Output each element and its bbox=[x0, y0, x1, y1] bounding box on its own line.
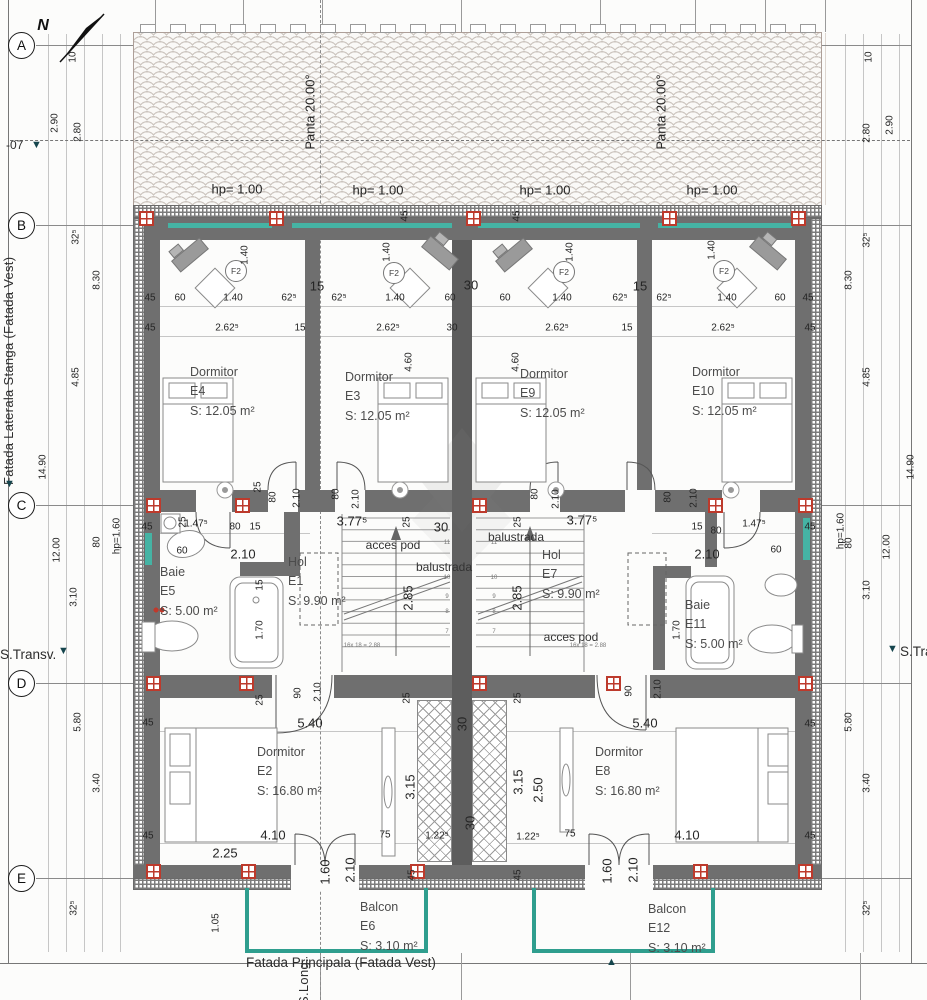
dim-label: 2.10 bbox=[626, 857, 641, 882]
room-area: S: 3.10 m² bbox=[360, 937, 418, 956]
dim-label: 2.62⁵ bbox=[215, 323, 239, 334]
room-name: Dormitor bbox=[257, 743, 322, 762]
room-id: E11 bbox=[685, 615, 743, 634]
room-id: E8 bbox=[595, 762, 660, 781]
dim-label: 1.05 bbox=[211, 913, 222, 932]
note-label: N bbox=[37, 17, 49, 35]
dim-label: 3.77⁵ bbox=[337, 514, 368, 529]
dim-label: 90 bbox=[293, 687, 304, 698]
dim-label: 3.10 bbox=[69, 587, 80, 606]
room-area: S: 16.80 m² bbox=[595, 782, 660, 801]
red-marker bbox=[235, 498, 250, 513]
dim-label: 80 bbox=[331, 488, 342, 499]
red-marker bbox=[798, 864, 813, 879]
plan-graphics bbox=[0, 0, 927, 1000]
dim-label: 80 bbox=[268, 491, 279, 502]
room-name: Baie bbox=[160, 563, 218, 582]
dim-label: 32⁵ bbox=[69, 900, 80, 915]
section-transv-left-marker: ▼ bbox=[58, 645, 69, 657]
dim-label: 32⁵ bbox=[862, 900, 873, 915]
dim-label: 45 bbox=[804, 719, 815, 730]
dim-label: 2.25 bbox=[212, 846, 237, 861]
room-id: E4 bbox=[190, 382, 255, 401]
dim-label: hp=1.60 bbox=[836, 513, 847, 549]
room-id: E5 bbox=[160, 582, 218, 601]
facade-left-marker: ▼ bbox=[4, 478, 15, 490]
level-marker-triangle: ▼ bbox=[31, 139, 42, 151]
dim-label: 2.90 bbox=[885, 115, 896, 134]
room-label-e11: BaieE11S: 5.00 m² bbox=[685, 596, 743, 654]
dim-label: 2.62⁵ bbox=[711, 323, 735, 334]
red-marker bbox=[693, 864, 708, 879]
dim-label: 60 bbox=[444, 293, 455, 304]
dim-label: 14.90 bbox=[906, 454, 917, 479]
dim-label: 25 bbox=[255, 694, 266, 705]
dim-label: 62⁵ bbox=[331, 293, 346, 304]
dim-label: 60 bbox=[499, 293, 510, 304]
room-name: Hol bbox=[288, 553, 346, 572]
note-label: balustrada bbox=[416, 560, 472, 574]
room-name: Dormitor bbox=[595, 743, 660, 762]
room-name: Hol bbox=[542, 546, 600, 565]
dim-label: 2.10 bbox=[351, 489, 362, 508]
room-id: E6 bbox=[360, 917, 418, 936]
note-label: acces pod bbox=[366, 538, 421, 552]
dim-label: hp=1.60 bbox=[112, 518, 123, 554]
dim-label: 1.60 bbox=[318, 859, 333, 884]
dim-label: 80 bbox=[229, 522, 240, 533]
room-label-e10: DormitorE10S: 12.05 m² bbox=[692, 363, 757, 421]
red-marker bbox=[472, 498, 487, 513]
room-id: E7 bbox=[542, 565, 600, 584]
note-label: 10 bbox=[444, 575, 451, 581]
dim-label: 2.85 bbox=[401, 585, 416, 610]
note-label: 16x 18 = 2.88 bbox=[570, 643, 607, 649]
dim-label: 2.80 bbox=[73, 122, 84, 141]
dim-label: 30 bbox=[464, 278, 478, 293]
dim-label: 45 bbox=[144, 293, 155, 304]
section-long-label: S.Long. bbox=[296, 930, 311, 1000]
grid-marker-c: C bbox=[8, 492, 35, 519]
dim-label: 2.10 bbox=[230, 547, 255, 562]
grid-marker-e: E bbox=[8, 865, 35, 892]
room-label-e7: HolE7S: 9.90 m² bbox=[542, 546, 600, 604]
dim-label: hp= 1.00 bbox=[212, 182, 263, 197]
dim-label: 2.90 bbox=[50, 113, 61, 132]
red-marker bbox=[798, 498, 813, 513]
dim-label: 2.10 bbox=[551, 489, 562, 508]
room-id: E1 bbox=[288, 572, 346, 591]
room-area: S: 12.05 m² bbox=[520, 404, 585, 423]
dim-label: 45 bbox=[144, 323, 155, 334]
room-area: S: 16.80 m² bbox=[257, 782, 322, 801]
dim-label: 3.10 bbox=[862, 580, 873, 599]
room-id: E2 bbox=[257, 762, 322, 781]
room-id: E10 bbox=[692, 382, 757, 401]
facade-bottom-marker: ▲ bbox=[606, 956, 617, 968]
red-marker bbox=[146, 498, 161, 513]
red-marker bbox=[269, 211, 284, 226]
dim-label: Panta 20.00° bbox=[303, 74, 318, 149]
dim-label: 80 bbox=[710, 526, 721, 537]
desks bbox=[166, 229, 792, 272]
dim-label: 45 bbox=[513, 869, 524, 880]
dim-label: 25 bbox=[402, 516, 413, 527]
room-label-e8: DormitorE8S: 16.80 m² bbox=[595, 743, 660, 801]
dim-label: 45 bbox=[804, 323, 815, 334]
dim-label: 15 bbox=[294, 323, 305, 334]
room-area: S: 9.90 m² bbox=[542, 585, 600, 604]
dim-label: 62⁵ bbox=[281, 293, 296, 304]
dim-label: 62⁵ bbox=[612, 293, 627, 304]
dim-label: 32⁵ bbox=[862, 232, 873, 247]
red-marker bbox=[146, 676, 161, 691]
red-marker bbox=[662, 211, 677, 226]
note-label: 9 bbox=[445, 594, 448, 600]
dim-label: 14.90 bbox=[38, 454, 49, 479]
dim-label: 2.50 bbox=[531, 777, 546, 802]
level-marker-label: -07 bbox=[6, 138, 23, 152]
dim-label: 80 bbox=[530, 488, 541, 499]
dim-label: 8.30 bbox=[844, 270, 855, 289]
room-area: S: 5.00 m² bbox=[685, 635, 743, 654]
room-name: Dormitor bbox=[190, 363, 255, 382]
red-marker bbox=[708, 498, 723, 513]
room-name: Dormitor bbox=[692, 363, 757, 382]
dim-label: 1.47⁵ bbox=[742, 519, 766, 530]
dim-label: 5.40 bbox=[297, 716, 322, 731]
window-tag: F2 bbox=[383, 262, 405, 284]
room-name: Balcon bbox=[648, 900, 706, 919]
room-label-e3: DormitorE3S: 12.05 m² bbox=[345, 368, 410, 426]
dim-label: 1.40 bbox=[385, 293, 404, 304]
room-area: S: 12.05 m² bbox=[692, 402, 757, 421]
dim-label: 90 bbox=[624, 685, 635, 696]
red-marker bbox=[241, 864, 256, 879]
dim-label: 75 bbox=[379, 830, 390, 841]
dim-label: 4.85 bbox=[862, 367, 873, 386]
dim-label: 2.10 bbox=[689, 488, 700, 507]
room-name: Dormitor bbox=[345, 368, 410, 387]
red-marker bbox=[139, 211, 154, 226]
red-marker bbox=[146, 864, 161, 879]
dim-label: 45 bbox=[142, 831, 153, 842]
room-area: S: 3.10 m² bbox=[648, 939, 706, 958]
dim-label: 1.40 bbox=[552, 293, 571, 304]
dim-label: 3.15 bbox=[403, 774, 418, 799]
dim-label: 2.10 bbox=[694, 547, 719, 562]
note-label: acces pod bbox=[544, 630, 599, 644]
dim-label: 2.10 bbox=[313, 682, 324, 701]
red-marker bbox=[472, 676, 487, 691]
dim-label: 45 bbox=[142, 718, 153, 729]
note-label: 8 bbox=[492, 609, 495, 615]
dim-label: 1.40 bbox=[382, 242, 393, 261]
window-tag: F2 bbox=[713, 260, 735, 282]
grid-marker-b: B bbox=[8, 212, 35, 239]
dim-label: 2.10 bbox=[343, 857, 358, 882]
dim-label: 45 bbox=[400, 210, 411, 221]
dim-label: hp= 1.00 bbox=[353, 183, 404, 198]
dim-label: 3.77⁵ bbox=[567, 513, 598, 528]
red-marker bbox=[798, 676, 813, 691]
dim-label: 3.40 bbox=[92, 773, 103, 792]
dim-label: 75 bbox=[564, 829, 575, 840]
red-marker bbox=[791, 211, 806, 226]
dim-label: 45 bbox=[802, 293, 813, 304]
note-label: 11 bbox=[444, 540, 450, 546]
section-transv-right-label: S.Transv. bbox=[900, 644, 927, 659]
room-area: S: 9.90 m² bbox=[288, 592, 346, 611]
note-label: 10 bbox=[491, 575, 498, 581]
room-name: Dormitor bbox=[520, 365, 585, 384]
dim-label: 45 bbox=[804, 831, 815, 842]
room-label-e9: DormitorE9S: 12.05 m² bbox=[520, 365, 585, 423]
red-marker bbox=[239, 676, 254, 691]
facade-left-label: Fatada Laterala Stanga (Fatada Vest) bbox=[1, 210, 16, 485]
dim-label: 32⁵ bbox=[71, 229, 82, 244]
dim-label: 1.70 bbox=[255, 620, 266, 639]
room-label-e5: BaieE5S: 5.00 m² bbox=[160, 563, 218, 621]
dim-label: 15 bbox=[621, 323, 632, 334]
dim-label: 30 bbox=[455, 717, 470, 731]
dim-label: 60 bbox=[176, 546, 187, 557]
dim-label: 15 bbox=[691, 522, 702, 533]
floor-plan-sheet: Fatada Laterala Stanga (Fatada Vest) ▼ F… bbox=[0, 0, 927, 1000]
room-name: Balcon bbox=[360, 898, 418, 917]
dim-label: hp= 1.00 bbox=[520, 183, 571, 198]
dim-label: 1.40 bbox=[717, 293, 736, 304]
dim-label: 1.40 bbox=[565, 242, 576, 261]
dim-label: 30 bbox=[446, 323, 457, 334]
room-area: S: 12.05 m² bbox=[190, 402, 255, 421]
dim-label: 80 bbox=[92, 536, 103, 547]
dim-label: 12.00 bbox=[52, 537, 63, 562]
dim-label: 5.40 bbox=[632, 716, 657, 731]
dim-label: 4.85 bbox=[71, 367, 82, 386]
room-id: E3 bbox=[345, 387, 410, 406]
dim-label: 8.30 bbox=[92, 270, 103, 289]
room-label-e1: HolE1S: 9.90 m² bbox=[288, 553, 346, 611]
dim-label: 3.40 bbox=[862, 773, 873, 792]
room-id: E12 bbox=[648, 919, 706, 938]
dim-label: 1.22⁵ bbox=[516, 832, 540, 843]
dim-label: 1.60 bbox=[600, 858, 615, 883]
dim-label: 62⁵ bbox=[656, 293, 671, 304]
dim-label: 15 bbox=[249, 522, 260, 533]
dim-label: 1.70 bbox=[672, 620, 683, 639]
note-label: 11 bbox=[491, 540, 497, 546]
dim-label: 2.85 bbox=[510, 585, 525, 610]
room-name: Baie bbox=[685, 596, 743, 615]
dim-label: 80 bbox=[663, 491, 674, 502]
grid-marker-a: A bbox=[8, 32, 35, 59]
room-label-e4: DormitorE4S: 12.05 m² bbox=[190, 363, 255, 421]
dim-label: 45 bbox=[407, 869, 418, 880]
attic-hatch bbox=[300, 553, 666, 625]
dim-label: hp= 1.00 bbox=[687, 183, 738, 198]
dim-label: 1.40 bbox=[240, 245, 251, 264]
dim-label: 25 bbox=[513, 692, 524, 703]
dim-label: 60 bbox=[774, 293, 785, 304]
dim-label: 2.62⁵ bbox=[376, 323, 400, 334]
dim-label: 5.80 bbox=[844, 712, 855, 731]
dim-label: 4.10 bbox=[260, 828, 285, 843]
dim-label: 25 bbox=[402, 692, 413, 703]
dim-label: 2.62⁵ bbox=[545, 323, 569, 334]
note-label: 9 bbox=[492, 594, 495, 600]
dim-label: 1.40 bbox=[223, 293, 242, 304]
dim-label: 25 bbox=[513, 516, 524, 527]
dim-label: 60 bbox=[174, 293, 185, 304]
dim-label: 25 bbox=[178, 516, 189, 527]
dim-label: 25 bbox=[253, 481, 264, 492]
grid-marker-d: D bbox=[8, 670, 35, 697]
dim-label: 2.10 bbox=[292, 488, 303, 507]
dim-label: 10 bbox=[68, 51, 79, 62]
room-label-e2: DormitorE2S: 16.80 m² bbox=[257, 743, 322, 801]
red-marker bbox=[466, 211, 481, 226]
dim-label: 45 bbox=[141, 522, 152, 533]
room-label-e12: BalconE12S: 3.10 m² bbox=[648, 900, 706, 958]
dim-label: 4.10 bbox=[674, 828, 699, 843]
facade-bottom-label: Fatada Principala (Fatada Vest) bbox=[246, 955, 436, 970]
dim-label: 10 bbox=[864, 51, 875, 62]
dim-label: 60 bbox=[770, 545, 781, 556]
red-marker bbox=[606, 676, 621, 691]
section-transv-left-label: S.Transv. bbox=[0, 647, 56, 662]
dim-label: 45 bbox=[512, 210, 523, 221]
dim-label: 30 bbox=[434, 520, 448, 535]
dim-label: 1.22⁵ bbox=[425, 831, 449, 842]
note-label: 7 bbox=[492, 629, 495, 635]
room-area: S: 12.05 m² bbox=[345, 407, 410, 426]
note-label: 8 bbox=[445, 609, 448, 615]
dim-label: 3.15 bbox=[511, 769, 526, 794]
dim-label: 12.00 bbox=[882, 534, 893, 559]
dim-label: 30 bbox=[463, 816, 478, 830]
dim-label: 2.10 bbox=[653, 679, 664, 698]
dim-label: 15 bbox=[255, 579, 266, 590]
dim-label: 1.40 bbox=[707, 240, 718, 259]
room-area: S: 5.00 m² bbox=[160, 602, 218, 621]
note-label: 16x 18 = 2.88 bbox=[344, 643, 381, 649]
dim-label: 15 bbox=[310, 279, 324, 294]
window-tag: F2 bbox=[553, 261, 575, 283]
note-label: 7 bbox=[445, 629, 448, 635]
room-id: E9 bbox=[520, 384, 585, 403]
dim-label: 2.80 bbox=[862, 123, 873, 142]
dim-label: 15 bbox=[633, 279, 647, 294]
room-label-e6: BalconE6S: 3.10 m² bbox=[360, 898, 418, 956]
section-transv-right-marker: ▼ bbox=[887, 643, 898, 655]
dim-label: 5.80 bbox=[73, 712, 84, 731]
dim-label: Panta 20.00° bbox=[654, 74, 669, 149]
dim-label: 45 bbox=[804, 522, 815, 533]
